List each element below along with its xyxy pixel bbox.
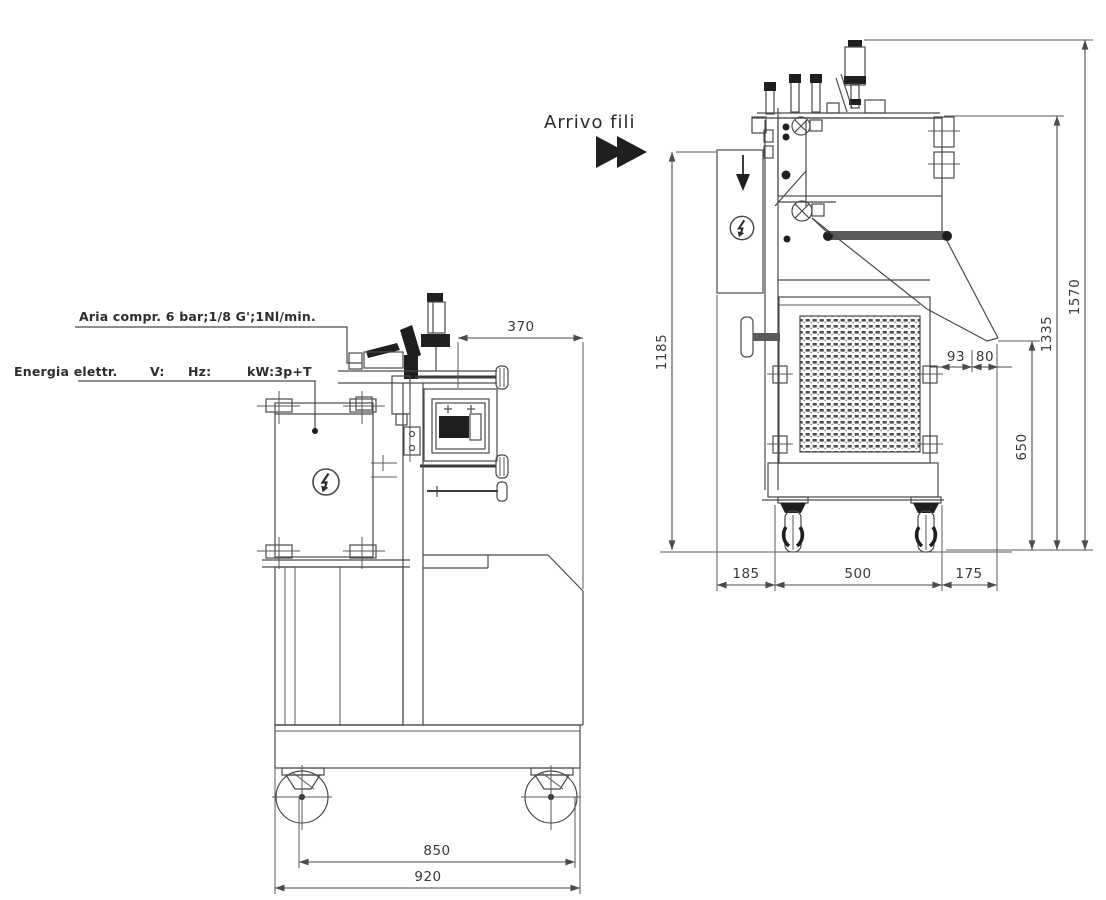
front-control-cabinet (257, 391, 397, 569)
dim-500-text: 500 (844, 566, 871, 582)
power-supply-label: Energia elettr. (14, 364, 117, 379)
technical-drawing-page: Aria compr. 6 bar;1/8 G';1Nl/min. Energi… (0, 0, 1106, 900)
dimension-1185: 1185 (654, 152, 717, 550)
caster-wheel-front-right (521, 765, 581, 830)
side-base (660, 463, 1012, 552)
dimension-920: 920 (275, 768, 580, 894)
perforated-grid (800, 316, 920, 452)
side-perforated-panel (741, 280, 943, 463)
side-bracket-box (717, 150, 763, 293)
dim-1185-text: 1185 (654, 334, 670, 370)
caster-wheel-side-right (911, 497, 941, 552)
dimension-850: 850 (299, 797, 575, 868)
hertz-label: Hz: (188, 364, 211, 379)
air-supply-note: Aria compr. 6 bar;1/8 G';1Nl/min. (75, 309, 362, 363)
dim-80-text: 80 (976, 349, 994, 365)
leader-dot (312, 428, 318, 434)
dim-850-text: 850 (423, 843, 450, 859)
dimension-1335: 1335 (944, 116, 1064, 550)
wire-arrival-annotation: Arrivo fili (544, 112, 647, 168)
dim-1570-text: 1570 (1067, 279, 1083, 315)
dimension-93-80: 93 80 (930, 349, 1012, 372)
caster-wheel-front-left (272, 765, 332, 830)
kilowatt-label: kW:3p+T (247, 364, 312, 379)
front-base-trolley (272, 725, 581, 830)
dim-175-text: 175 (955, 566, 982, 582)
dimension-370: 370 (458, 319, 583, 589)
dim-370-text: 370 (507, 319, 534, 335)
cross-valve-upper (792, 117, 822, 135)
front-head-unit (404, 366, 508, 501)
dim-920-text: 920 (414, 869, 441, 885)
machine-dimensional-drawing: Aria compr. 6 bar;1/8 G';1Nl/min. Energi… (0, 0, 1106, 900)
dim-1335-text: 1335 (1039, 316, 1055, 352)
wire-arrival-label: Arrivo fili (544, 112, 636, 133)
feed-direction-arrow-icon (736, 155, 750, 191)
side-top-assembly (752, 40, 942, 133)
dim-650-text: 650 (1014, 433, 1030, 460)
front-view: Aria compr. 6 bar;1/8 G';1Nl/min. Energi… (14, 293, 583, 894)
dimension-650: 650 (998, 341, 1040, 550)
air-supply-label: Aria compr. 6 bar;1/8 G';1Nl/min. (79, 309, 316, 324)
dim-93-text: 93 (947, 349, 965, 365)
dim-185-text: 185 (732, 566, 759, 582)
cross-valve-lower (792, 201, 824, 221)
side-view: Arrivo fili (544, 40, 1093, 591)
wire-arrival-arrow-icon (596, 136, 647, 168)
caster-wheel-side-left (778, 497, 808, 552)
volt-label: V: (150, 364, 165, 379)
side-handle (741, 317, 780, 357)
